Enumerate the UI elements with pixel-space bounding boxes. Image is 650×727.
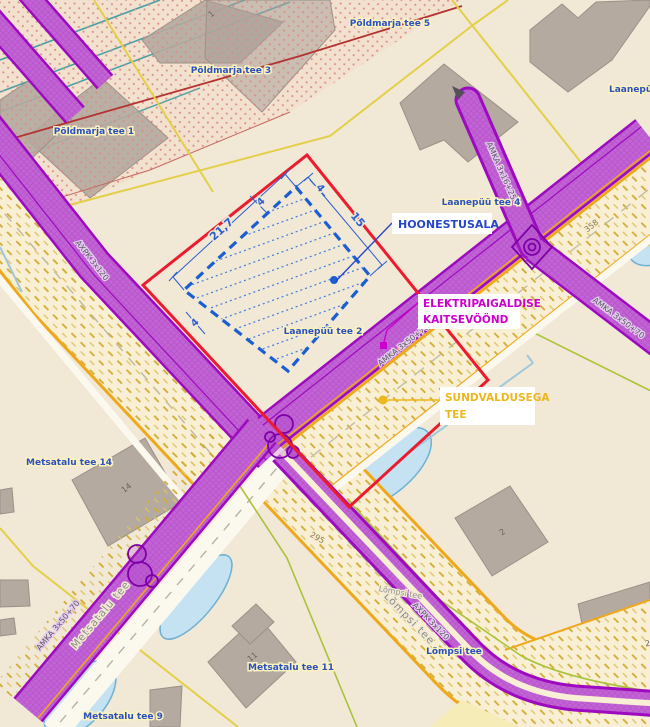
parcel-label: Põldmarja tee 1 xyxy=(54,127,134,137)
pole-symbol xyxy=(265,432,275,442)
kaitsevoond-marker xyxy=(380,342,387,349)
kaitsevoond-label-line2: KAITSEVÖÖND xyxy=(423,312,509,326)
parcel-label: Metsatalu tee 14 xyxy=(26,458,112,468)
sundvaldus-callout: SUNDVALDUSEGA TEE xyxy=(440,387,550,425)
kaitsevoond-label-line1: ELEKTRIPAIGALDISE xyxy=(423,298,541,310)
parcel-label: Laanepüü tee xyxy=(609,85,650,95)
parcel-label: Metsatalu tee 11 xyxy=(248,663,334,673)
parcel-label: Laanepüü tee 4 xyxy=(442,198,521,208)
sundvaldus-label-line1: SUNDVALDUSEGA xyxy=(445,392,550,404)
hoonestusala-callout: HOONESTUSALA xyxy=(392,213,499,234)
map-canvas[interactable]: Põldmarja tee 5 Põldmarja tee 3 Põldmarj… xyxy=(0,0,650,727)
pole-symbol xyxy=(128,545,146,563)
sundvaldus-marker xyxy=(379,396,388,405)
building-number: 2 xyxy=(644,639,650,649)
building xyxy=(0,618,16,636)
parcel-label: Põldmarja tee 5 xyxy=(350,19,430,29)
pole-symbol xyxy=(146,575,158,587)
sundvaldus-label-line2: TEE xyxy=(445,409,467,421)
parcel-label: Lõmpsi tee xyxy=(426,647,482,657)
map-viewport: Põldmarja tee 5 Põldmarja tee 3 Põldmarj… xyxy=(0,0,650,727)
building xyxy=(0,580,30,607)
hoonestusala-label: HOONESTUSALA xyxy=(398,218,499,231)
building xyxy=(0,488,14,514)
parcel-label: Laanepüü tee 2 xyxy=(284,327,363,337)
parcel-label: Metsatalu tee 9 xyxy=(83,712,163,722)
parcel-label: Põldmarja tee 3 xyxy=(191,66,271,76)
